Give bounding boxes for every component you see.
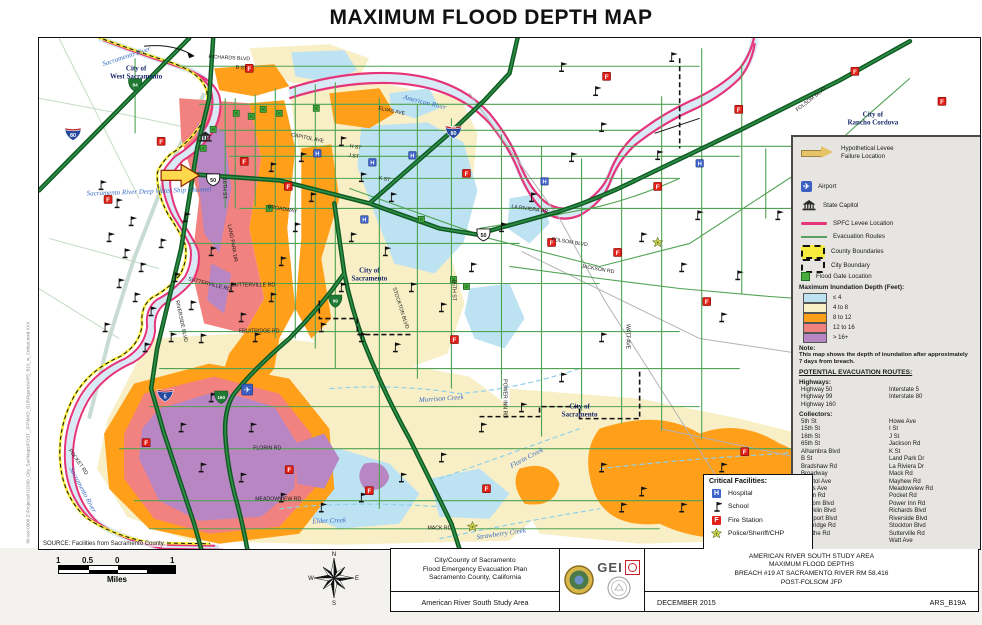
- engineer-seal-logo: [607, 576, 631, 600]
- route-name: Jackson Rd: [889, 441, 933, 448]
- hospital-icon: H: [313, 150, 321, 158]
- depth-entry: 4 to 8: [803, 303, 848, 313]
- svg-text:H: H: [410, 154, 414, 160]
- route-name: Land Park Dr: [889, 456, 933, 463]
- svg-text:F: F: [453, 337, 457, 344]
- hospital-icon: H: [409, 152, 417, 160]
- legend-item-breach: Hypothetical LeveeFailure Location: [801, 145, 894, 161]
- fire-station-icon: F: [482, 485, 490, 494]
- fire-station-icon: F: [703, 298, 711, 307]
- fire-station-icon: F: [938, 97, 946, 106]
- plan-line: Sacramento County, California: [429, 574, 521, 583]
- svg-text:F: F: [242, 159, 246, 166]
- map-legend: Hypothetical LeveeFailure Location ✈ Air…: [791, 135, 981, 550]
- road-label: RICHARDS BLVD: [208, 54, 250, 62]
- cf-label: Hospital: [728, 490, 753, 497]
- flood-gate-icon: [801, 272, 810, 281]
- route-name: Interstate 80: [889, 394, 922, 401]
- compass-e: E: [355, 576, 359, 582]
- legend-item-capitol: State Capitol: [801, 199, 858, 212]
- school-icon: [719, 313, 727, 322]
- legend-item-cityb: City Boundary: [801, 259, 870, 273]
- road-label: POWER INN RD: [501, 379, 507, 418]
- fire-station-icon: F: [450, 336, 458, 345]
- depth-swatch: [803, 333, 827, 343]
- state-capitol-icon: [801, 199, 817, 212]
- evacuation-route-line-icon: [801, 236, 827, 239]
- svg-text:F: F: [705, 299, 709, 306]
- route-name: Highway 50: [801, 387, 836, 394]
- svg-text:50: 50: [480, 233, 486, 239]
- critical-facilities-title: Critical Facilities:: [709, 478, 812, 485]
- cf-label: Police/Sheriff/CHP: [728, 530, 784, 537]
- depth-entry: 8 to 12: [803, 313, 851, 323]
- sheet-title-block: AMERICAN RIVER SOUTH STUDY AREA MAXIMUM …: [644, 548, 979, 612]
- svg-text:F: F: [940, 99, 944, 106]
- legend-label: City Boundary: [831, 262, 870, 270]
- flood-gate-icon: [233, 110, 239, 116]
- legend-item-county: County Boundaries: [801, 245, 884, 259]
- page-title: MAXIMUM FLOOD DEPTH MAP: [0, 6, 982, 30]
- svg-text:BUS: BUS: [451, 125, 457, 129]
- svg-text:F: F: [605, 74, 609, 81]
- fire-station-icon: F: [735, 105, 743, 114]
- road-label: 65TH ST: [450, 280, 456, 302]
- evac-routes-heading: POTENTIAL EVACUATION ROUTES:: [799, 369, 912, 376]
- depth-scale-title: Maximum Inundation Depth (Feet):: [799, 284, 904, 291]
- route-name: 16th St: [801, 434, 840, 441]
- levee-breach-arrow-icon: [801, 146, 835, 159]
- depth-label: 4 to 8: [833, 305, 848, 311]
- logo-block: GEI: [559, 548, 645, 612]
- fire-station-icon: F: [157, 137, 165, 146]
- note-heading: Note:: [799, 345, 815, 352]
- fire-station-icon: F: [240, 157, 248, 166]
- fire-station-icon: F: [712, 516, 721, 525]
- svg-text:80: 80: [450, 131, 456, 137]
- fire-station-icon: F: [284, 182, 292, 191]
- svg-text:H: H: [542, 180, 546, 186]
- highways-heading: Highways:: [799, 379, 831, 386]
- depth-swatch: [803, 293, 827, 303]
- school-icon: [679, 262, 687, 271]
- school-icon: [735, 270, 743, 279]
- school-icon: [775, 210, 783, 219]
- fire-station-icon: F: [851, 67, 859, 76]
- hospital-icon: H: [696, 160, 704, 168]
- flood-gate-icon: [200, 145, 206, 151]
- road-label: SUTTERVILLE RD: [231, 282, 275, 288]
- collectors-heading: Collectors:: [799, 411, 832, 418]
- school-icon: [129, 216, 137, 225]
- sheet-line: BREACH #19 AT SACRAMENTO RIVER RM 58.416: [735, 570, 889, 579]
- study-area-label: American River South Study Area: [391, 592, 559, 612]
- depth-label: 12 to 16: [833, 325, 855, 331]
- county-boundary-icon: [801, 245, 825, 259]
- route-name: Pocket Rd: [889, 493, 933, 500]
- flood-gate-icon: [313, 105, 319, 111]
- svg-text:F: F: [853, 69, 857, 76]
- file-path-note: 00-xxx-0000 Z:\Projects\H11560_City_Sac\…: [26, 153, 31, 625]
- depth-label: 8 to 12: [833, 315, 851, 321]
- source-note: SOURCE: Facilities from Sacramento Count…: [41, 541, 167, 547]
- route-name: 15th St: [801, 426, 840, 433]
- legend-label: County Boundaries: [831, 248, 884, 256]
- school-icon: [159, 238, 167, 247]
- depth-label: ≤ 4: [833, 295, 841, 301]
- county-seal-logo: [564, 565, 594, 595]
- svg-text:F: F: [737, 107, 741, 114]
- road-label: 16TH ST: [221, 178, 227, 200]
- police-icon: [653, 237, 663, 246]
- depth-swatch: [803, 303, 827, 313]
- route-name: Sutterville Rd: [889, 531, 933, 538]
- route-name: Mayhew Rd: [889, 479, 933, 486]
- school-icon: [107, 232, 115, 241]
- road-label: RIVERSIDE BLVD: [174, 300, 189, 343]
- legend-item-spfc: SPFC Levee Location: [801, 220, 893, 228]
- sheet-line: AMERICAN RIVER SOUTH STUDY AREA: [749, 553, 874, 562]
- route-name: I St: [889, 426, 933, 433]
- svg-text:F: F: [367, 488, 371, 495]
- scale-tick: 1: [170, 556, 174, 565]
- svg-text:H: H: [698, 162, 702, 168]
- hospital-icon: H: [361, 216, 369, 224]
- plan-line: Flood Emergency Evacuation Plan: [423, 566, 527, 575]
- route-name: Bradshaw Rd: [801, 464, 840, 471]
- school-icon: [115, 198, 123, 207]
- route-name: Riverside Blvd: [889, 516, 933, 523]
- depth-entry: ≤ 4: [803, 293, 841, 303]
- airport-icon: ✈: [801, 181, 812, 192]
- depth-entry: 12 to 16: [803, 323, 855, 333]
- route-name: La Riviera Dr: [889, 464, 933, 471]
- scale-bar: 1 0.5 0 1 Miles: [58, 556, 176, 584]
- water-label: Elder Creek: [311, 516, 347, 525]
- police-icon: [711, 528, 722, 539]
- route-name: 5th St: [801, 419, 840, 426]
- svg-text:84: 84: [133, 82, 139, 87]
- compass-n: N: [332, 552, 336, 558]
- school-icon: [139, 262, 147, 271]
- road-label: MACK RD: [427, 526, 451, 532]
- svg-text:F: F: [287, 467, 291, 474]
- depth-swatch: [803, 323, 827, 333]
- depth-label: > 16+: [833, 335, 848, 341]
- compass-w: W: [308, 576, 314, 582]
- collectors-col2: Howe AveI StJ StJackson RdK StLand Park …: [889, 419, 933, 545]
- route-name: Howe Ave: [889, 419, 933, 426]
- svg-text:F: F: [743, 449, 747, 456]
- sheet-line: POST-FOLSOM JFP: [781, 579, 842, 588]
- spfc-levee-line-icon: [801, 222, 827, 225]
- cf-row-police: Police/Sheriff/CHP: [711, 528, 812, 539]
- route-name: 65th St: [801, 441, 840, 448]
- svg-text:F: F: [286, 184, 290, 191]
- highways-col1: Highway 50Highway 99Highway 160: [801, 387, 836, 409]
- svg-text:F: F: [616, 250, 620, 257]
- gei-logo-text: GEI: [597, 560, 622, 575]
- fire-station-icon: F: [365, 487, 373, 496]
- route-name: Power Inn Rd: [889, 501, 933, 508]
- route-name: Highway 99: [801, 394, 836, 401]
- svg-text:F: F: [159, 139, 163, 146]
- school-icon: [133, 292, 141, 301]
- svg-text:F: F: [106, 197, 110, 204]
- legend-label: State Capitol: [823, 202, 858, 210]
- depth-swatch: [803, 313, 827, 323]
- highways-col2: Interstate 5Interstate 80: [889, 387, 922, 402]
- city-label: City ofWest Sacramento: [110, 64, 163, 80]
- legend-label: SPFC Levee Location: [833, 220, 893, 228]
- scale-bar-graphic: [58, 565, 176, 574]
- map-date: DECEMBER 2015: [657, 598, 716, 607]
- school-icon: [695, 210, 703, 219]
- cf-row-hospital: H Hospital: [711, 488, 812, 499]
- hospital-icon: H: [541, 178, 549, 186]
- legend-label: Hypothetical Levee: [841, 145, 894, 152]
- map-frame: HHHHHHFFFFFFFFFFFFFFFFFFFF✈8055050991608…: [38, 37, 981, 550]
- sheet-line: MAXIMUM FLOOD DEPTHS: [769, 561, 854, 570]
- cf-label: School: [728, 503, 749, 510]
- route-name: Richards Blvd: [889, 508, 933, 515]
- scale-tick: 0.5: [82, 556, 93, 565]
- hospital-icon: H: [369, 159, 377, 167]
- flood-gate-icon: [276, 110, 282, 116]
- svg-text:5: 5: [164, 394, 167, 400]
- shield-interstate-80: 80: [65, 128, 81, 141]
- svg-text:F: F: [247, 66, 251, 73]
- flood-gate-icon: [260, 106, 266, 112]
- route-name: Mack Rd: [889, 471, 933, 478]
- svg-text:50: 50: [210, 178, 216, 184]
- flood-gate-icon: [463, 283, 469, 289]
- plan-line: City/County of Sacramento: [434, 557, 515, 566]
- cf-row-fire: F Fire Station: [711, 515, 812, 526]
- svg-text:F: F: [485, 486, 489, 493]
- route-name: Alhambra Blvd: [801, 449, 840, 456]
- critical-facilities-box: Critical Facilities: H Hospital School F…: [703, 474, 813, 550]
- cf-row-school: School: [711, 501, 812, 512]
- footer: 1 0.5 0 1 Miles N E S W: [38, 548, 979, 612]
- scale-tick: 1: [56, 556, 60, 565]
- note-text: This map shows the depth of inundation a…: [799, 352, 971, 367]
- legend-label: Evacuation Routes: [833, 233, 885, 241]
- road-label: JACKSON RD: [581, 264, 615, 276]
- legend-label: Airport: [818, 183, 836, 191]
- route-name: Meadowview Rd: [889, 486, 933, 493]
- svg-text:H: H: [362, 218, 366, 224]
- school-icon: [469, 262, 477, 271]
- fire-station-icon: F: [142, 439, 150, 448]
- fire-station-icon: F: [654, 182, 662, 191]
- svg-text:H: H: [315, 152, 319, 158]
- svg-text:F: F: [656, 184, 660, 191]
- depth-entry: > 16+: [803, 333, 848, 343]
- legend-label: Flood Gate Location: [816, 273, 872, 281]
- flood-depth-map-page: MAXIMUM FLOOD DEPTH MAP 00-xxx-0000 Z:\P…: [0, 0, 982, 625]
- fire-station-icon: F: [462, 169, 470, 178]
- city-boundary-icon: [801, 259, 825, 273]
- route-name: Highway 160: [801, 402, 836, 409]
- route-name: Stockton Blvd: [889, 523, 933, 530]
- svg-text:✈: ✈: [244, 385, 251, 394]
- road-label: FOLSOM BLVD: [551, 237, 588, 249]
- flood-gate-icon: [248, 113, 254, 119]
- svg-text:H: H: [370, 161, 374, 167]
- road-label: FRUITRIDGE RD: [239, 329, 280, 335]
- compass-rose: N E S W: [308, 550, 360, 606]
- school-icon: [593, 86, 601, 95]
- school-icon: [189, 301, 197, 310]
- fire-station-icon: F: [285, 466, 293, 475]
- svg-text:80: 80: [70, 133, 76, 139]
- school-icon: [293, 222, 301, 231]
- svg-text:99: 99: [333, 299, 339, 304]
- school-icon: [599, 333, 607, 342]
- route-name: B St: [801, 456, 840, 463]
- school-icon: [559, 373, 567, 382]
- svg-text:160: 160: [217, 395, 225, 400]
- route-name: Interstate 5: [889, 387, 922, 394]
- fire-station-icon: F: [741, 448, 749, 457]
- cf-label: Fire Station: [728, 517, 763, 524]
- legend-item-gate: Flood Gate Location: [801, 272, 872, 281]
- shield-us-50: 50: [477, 229, 490, 241]
- svg-text:F: F: [144, 440, 148, 447]
- school-icon: [712, 501, 722, 512]
- school-icon: [123, 248, 131, 257]
- road-label: MEADOWVIEW RD: [255, 497, 301, 503]
- svg-text:F: F: [465, 171, 469, 178]
- legend-item-evac: Evacuation Routes: [801, 233, 885, 241]
- school-icon: [655, 150, 663, 159]
- road-label: WATT AVE: [625, 324, 631, 350]
- hospital-icon: H: [712, 489, 721, 498]
- flood-gate-icon: [418, 216, 424, 222]
- legend-item-airport: ✈ Airport: [801, 181, 836, 192]
- fire-station-icon: F: [603, 72, 611, 81]
- scale-unit: Miles: [58, 575, 176, 584]
- airport-icon: ✈: [242, 384, 253, 395]
- sheet-id: ARS_B19A: [930, 598, 966, 607]
- city-label: City ofRancho Cordova: [848, 110, 899, 126]
- route-name: Watt Ave: [889, 538, 933, 545]
- route-name: K St: [889, 449, 933, 456]
- compass-s: S: [332, 601, 336, 606]
- scale-tick: 0: [115, 556, 119, 565]
- school-icon: [639, 232, 647, 241]
- flood-gate-icon: [210, 126, 216, 132]
- water-label: Sacramento River Deep Water Ship Channel: [87, 185, 212, 197]
- fire-station-icon: F: [614, 248, 622, 257]
- school-icon: [669, 52, 677, 61]
- road-label: FLORIN RD: [253, 446, 281, 452]
- gei-logo-mark: [625, 560, 640, 575]
- route-name: J St: [889, 434, 933, 441]
- plan-title-block: City/County of Sacramento Flood Emergenc…: [390, 548, 560, 612]
